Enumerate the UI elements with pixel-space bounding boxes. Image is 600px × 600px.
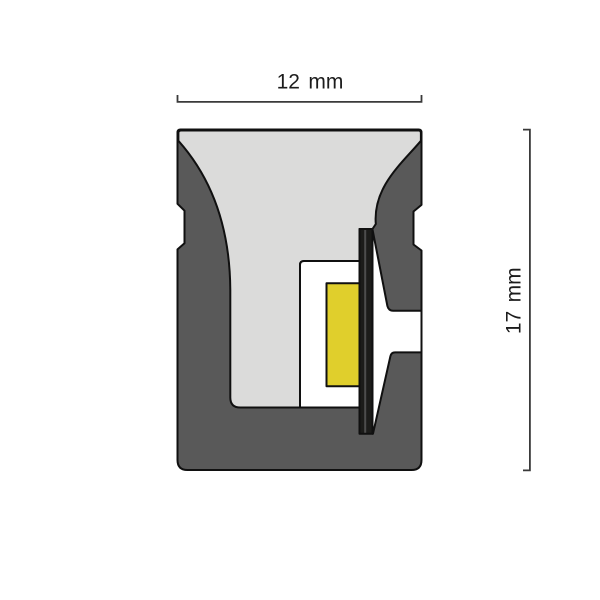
svg-text:17 mm: 17 mm (503, 267, 526, 334)
svg-text:12 mm: 12 mm (277, 70, 344, 93)
